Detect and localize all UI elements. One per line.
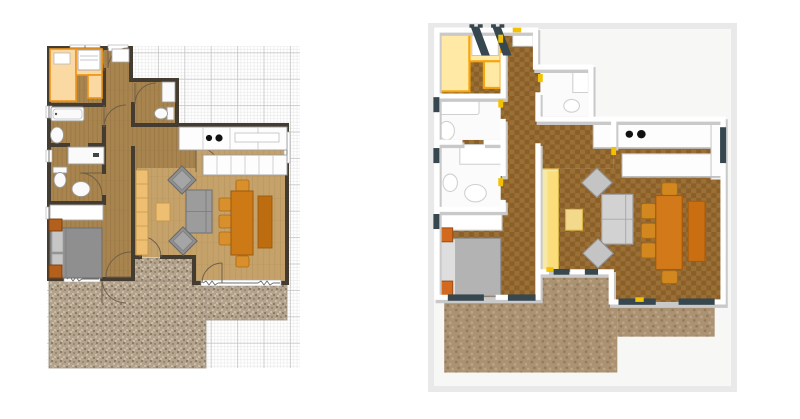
shower bbox=[162, 82, 175, 102]
bathtub bbox=[51, 107, 84, 121]
bookshelf bbox=[136, 170, 148, 255]
window-bar bbox=[433, 97, 439, 112]
cooktop-burner bbox=[206, 135, 212, 141]
vanity bbox=[68, 147, 104, 164]
nightstand bbox=[49, 265, 62, 278]
floor-plan-workspace bbox=[0, 0, 800, 419]
dining-chair bbox=[219, 215, 231, 228]
bookshelf-3d bbox=[540, 169, 558, 271]
toilet bbox=[53, 167, 67, 188]
window-bar bbox=[433, 214, 439, 229]
wardrobe bbox=[50, 205, 103, 220]
window-bar bbox=[433, 148, 439, 163]
washbasin bbox=[72, 182, 90, 197]
dining-chair bbox=[219, 198, 231, 211]
counter-row-island bbox=[203, 155, 287, 175]
view-3d-panel[interactable] bbox=[400, 0, 800, 419]
window-bar bbox=[720, 127, 726, 163]
view-3d-canvas[interactable] bbox=[400, 0, 800, 419]
washbasin bbox=[51, 127, 64, 143]
entry-closet bbox=[112, 49, 129, 62]
cooktop-burner bbox=[215, 134, 222, 141]
plan-2d-canvas[interactable] bbox=[0, 0, 400, 419]
counter-sink bbox=[235, 133, 279, 142]
coffee-table bbox=[156, 203, 170, 221]
sideboard bbox=[258, 196, 272, 248]
oven bbox=[78, 50, 100, 70]
window-bar bbox=[448, 294, 484, 300]
kitchen-sink bbox=[54, 53, 70, 64]
dining-table bbox=[231, 191, 253, 255]
window-bar bbox=[585, 269, 598, 275]
window-bar bbox=[554, 269, 570, 275]
dining-chair bbox=[236, 256, 249, 267]
window-bar bbox=[508, 294, 536, 300]
dining-chair bbox=[219, 232, 231, 245]
dining-chair bbox=[236, 180, 249, 191]
counter-row-north bbox=[179, 127, 287, 150]
plan-2d-panel[interactable] bbox=[0, 0, 400, 419]
nightstand bbox=[49, 219, 62, 231]
toilet bbox=[155, 107, 175, 120]
window-bar bbox=[679, 298, 715, 304]
